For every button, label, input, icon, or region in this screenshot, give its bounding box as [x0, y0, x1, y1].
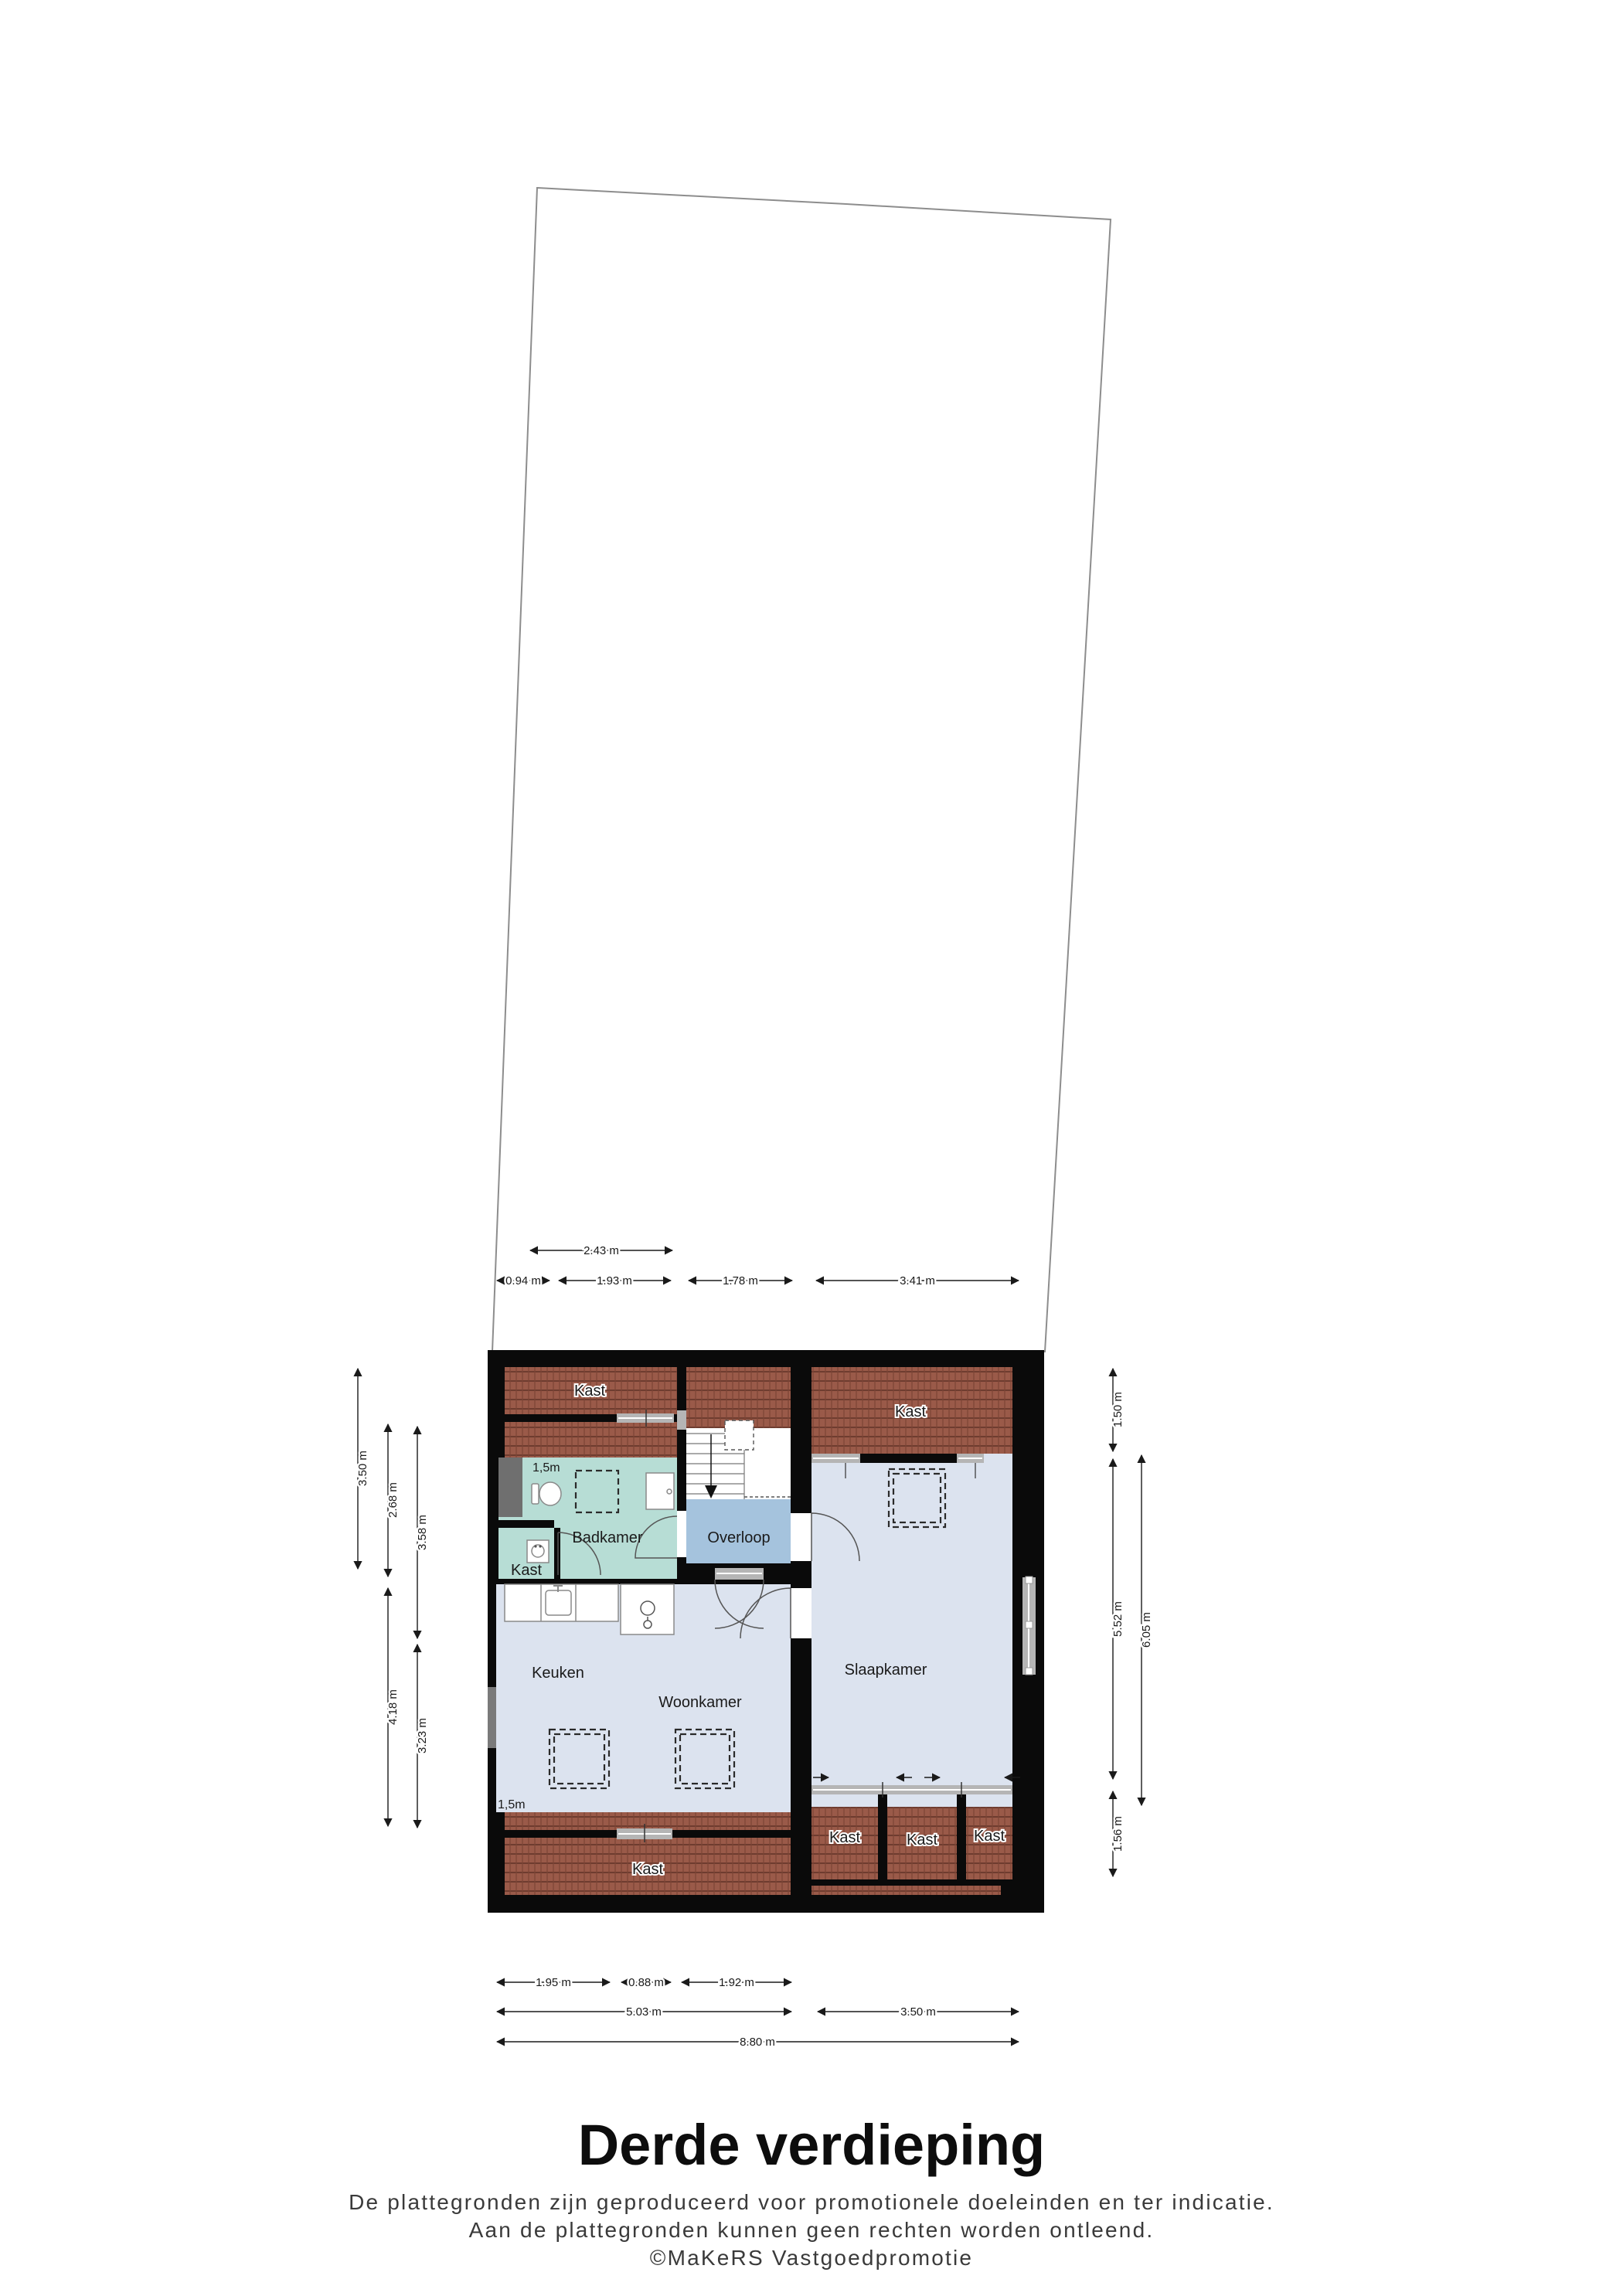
label-slaapkamer: Slaapkamer: [845, 1662, 927, 1679]
wall-wardrobe-divider-1: [878, 1794, 887, 1879]
dim-left-1: 2.68 m: [386, 1482, 400, 1518]
floor-plan-svg: Kast Kast Badkamer Kast Overloop Keuken …: [0, 0, 1623, 2296]
dim-top-2: 1.93 m: [597, 1274, 632, 1287]
sink-kast-icon: [527, 1540, 549, 1563]
door-opening-badkamer: [677, 1511, 686, 1557]
roof-band-stairs: [686, 1367, 791, 1428]
dim-left-3: 4.18 m: [386, 1689, 400, 1725]
floorplan-page: Kast Kast Badkamer Kast Overloop Keuken …: [0, 0, 1623, 2296]
label-overloop: Overloop: [707, 1529, 770, 1546]
dim-bottom-2: 1.92 m: [719, 1976, 754, 1989]
floor-plan: Kast Kast Badkamer Kast Overloop Keuken …: [488, 1350, 1044, 1913]
dim-right-0: 1.50 m: [1111, 1392, 1125, 1427]
label-kast-wardrobe-1: Kast: [829, 1829, 860, 1846]
label-kast-top-right: Kast: [895, 1403, 926, 1420]
caption-block: Derde verdieping De plattegronden zijn g…: [0, 2112, 1623, 2274]
label-kast-side: Kast: [511, 1562, 542, 1579]
toilet-icon: [532, 1482, 561, 1505]
door-opening-woonkamer-slaapkamer: [791, 1588, 811, 1638]
label-kast-wardrobe-3: Kast: [974, 1828, 1005, 1845]
height-marker-badkamer: 1,5m: [532, 1461, 560, 1475]
roof-band-badkamer: [505, 1422, 677, 1458]
dim-bottom-1: 0.88 m: [628, 1976, 664, 1989]
dim-bottom-3: 5.03 m: [626, 2005, 662, 2019]
dim-bottom-4: 3.50 m: [900, 2005, 936, 2019]
door-opening-overloop-slaapkamer: [791, 1513, 811, 1561]
roof-strip-wardrobe: [811, 1886, 1001, 1895]
disclaimer-line-2: Aan de plattegronden kunnen geen rechten…: [0, 2218, 1623, 2243]
dim-bottom-5: 8.80 m: [740, 2036, 775, 2049]
label-kast-wardrobe-2: Kast: [907, 1832, 937, 1849]
label-keuken: Keuken: [532, 1665, 584, 1682]
label-kast-top-left: Kast: [574, 1383, 605, 1400]
wall-kast-side-right: [554, 1528, 560, 1579]
wall-wardrobe-divider-2: [957, 1794, 966, 1879]
dim-right-3: 6.05 m: [1140, 1612, 1153, 1648]
dim-left-4: 3.23 m: [416, 1718, 429, 1753]
slaapkamer-wall-gap: [984, 1454, 1012, 1463]
dim-right-2: 1.56 m: [1111, 1816, 1125, 1852]
dim-left-2: 3.58 m: [416, 1515, 429, 1550]
kitchen-counter-icon: [505, 1584, 618, 1621]
height-marker-woonkamer: 1,5m: [498, 1798, 526, 1811]
wall-kast-side-top: [498, 1520, 554, 1528]
label-badkamer: Badkamer: [572, 1529, 642, 1546]
disclaimer-line-1: De plattegronden zijn geproduceerd voor …: [0, 2190, 1623, 2215]
window-badkamer-side: [677, 1410, 686, 1430]
wardrobe-floor-band: [811, 1794, 1012, 1807]
dim-right-1: 5.52 m: [1111, 1601, 1125, 1637]
shaft: [498, 1458, 522, 1517]
room-slaapkamer-floor: [811, 1463, 1012, 1785]
stairs-headroom: [725, 1420, 754, 1450]
floor-title: Derde verdieping: [0, 2112, 1623, 2178]
window-keuken-left: [488, 1687, 496, 1748]
dim-left-0: 3.50 m: [356, 1451, 369, 1486]
credit-line: ©MaKeRS Vastgoedpromotie: [0, 2246, 1623, 2270]
dim-bottom-0: 1.95 m: [536, 1976, 571, 1989]
dim-top-3: 1.78 m: [723, 1274, 758, 1287]
plot-outline: [492, 188, 1111, 1352]
label-kast-bottom: Kast: [632, 1861, 663, 1878]
label-woonkamer: Woonkamer: [658, 1694, 742, 1711]
dim-top-1: 0.94 m: [505, 1274, 541, 1287]
roof-strip-woonkamer: [505, 1812, 791, 1830]
dim-top-0: 2.43 m: [584, 1244, 619, 1257]
dim-top-4: 3.41 m: [900, 1274, 935, 1287]
boiler-icon: [621, 1584, 674, 1634]
